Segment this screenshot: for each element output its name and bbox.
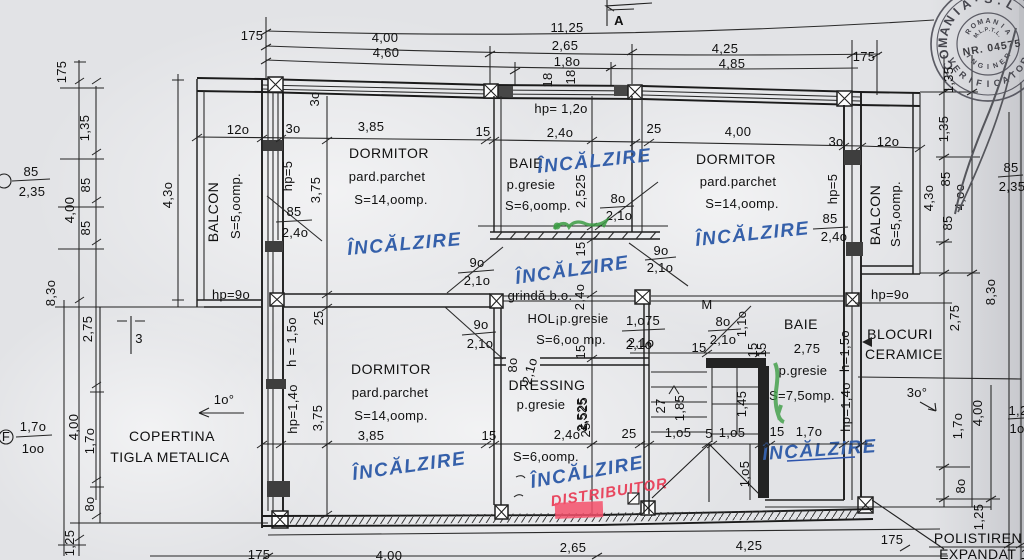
svg-text:DORMITOR: DORMITOR (349, 145, 429, 161)
svg-text:8o: 8o (953, 478, 968, 493)
svg-text:M: M (936, 37, 950, 48)
svg-text:pard.parchet: pard.parchet (349, 169, 426, 184)
svg-text:8o: 8o (610, 191, 625, 206)
svg-text:p.gresie: p.gresie (517, 397, 566, 412)
svg-text:hp=9o: hp=9o (871, 287, 909, 302)
svg-text:4,00: 4,00 (376, 548, 403, 560)
svg-text:TIGLA METALICA: TIGLA METALICA (110, 449, 230, 465)
svg-text:1,85: 1,85 (672, 395, 687, 422)
svg-text:3o: 3o (285, 121, 300, 136)
svg-text:9o: 9o (473, 317, 488, 332)
svg-text:CERAMICE: CERAMICE (865, 346, 943, 362)
svg-text:grindă b.o.: grindă b.o. (508, 288, 573, 303)
svg-text:3,85: 3,85 (358, 428, 385, 443)
svg-text:25: 25 (621, 426, 636, 441)
svg-text:4,85: 4,85 (719, 56, 746, 71)
svg-text:DRESSING: DRESSING (508, 377, 585, 393)
svg-text:p.gresie: p.gresie (779, 363, 828, 378)
svg-text:2,75: 2,75 (794, 341, 821, 356)
svg-text:175: 175 (248, 547, 271, 560)
svg-text:DORMITOR: DORMITOR (351, 361, 431, 377)
svg-text:pard.parchet: pard.parchet (700, 174, 777, 189)
svg-text:1,25: 1,25 (62, 530, 77, 557)
svg-text:3o: 3o (828, 134, 843, 149)
svg-text:1,7o: 1,7o (950, 413, 965, 440)
svg-text:9o: 9o (653, 243, 668, 258)
svg-text:85: 85 (822, 211, 837, 226)
svg-text:25: 25 (311, 310, 326, 325)
svg-text:1o: 1o (1009, 421, 1024, 436)
svg-text:S=6,oomp.: S=6,oomp. (505, 198, 571, 213)
svg-text:S=7,5omp.: S=7,5omp. (769, 388, 835, 403)
svg-text:2,75: 2,75 (947, 305, 962, 332)
svg-text:BALCON: BALCON (205, 182, 221, 243)
svg-text:4,25: 4,25 (736, 538, 763, 553)
svg-text:3,75: 3,75 (310, 405, 325, 432)
svg-text:2,75: 2,75 (80, 316, 95, 343)
svg-text:I: I (987, 79, 990, 89)
svg-text:85: 85 (940, 215, 955, 230)
svg-text:M: M (701, 297, 712, 312)
svg-text:I: I (987, 64, 989, 71)
svg-text:2,1o: 2,1o (606, 208, 633, 223)
svg-text:4,3o: 4,3o (160, 182, 175, 209)
svg-text:11,25: 11,25 (550, 20, 583, 35)
svg-text:3o: 3o (307, 91, 322, 106)
svg-text:POLISTIREN: POLISTIREN (934, 530, 1022, 546)
svg-text:1,o5: 1,o5 (719, 425, 746, 440)
svg-text:2,4o: 2,4o (282, 225, 309, 240)
svg-text:175: 175 (241, 28, 264, 43)
svg-text:175: 175 (853, 49, 876, 64)
svg-text:85: 85 (286, 204, 301, 219)
svg-text:3,85: 3,85 (358, 119, 385, 134)
svg-text:8o: 8o (82, 496, 97, 511)
svg-text:2,35: 2,35 (19, 184, 46, 199)
svg-text:hp=5: hp=5 (825, 174, 840, 204)
svg-text:h = 1,5o: h = 1,5o (284, 317, 299, 367)
svg-text:DORMITOR: DORMITOR (696, 151, 776, 167)
svg-text:1,1o: 1,1o (734, 311, 749, 338)
svg-text:15: 15 (769, 424, 784, 439)
svg-text:A: A (614, 13, 624, 28)
svg-text:2,1o: 2,1o (464, 273, 491, 288)
svg-text:12o: 12o (227, 122, 250, 137)
svg-text:4,00: 4,00 (970, 400, 985, 427)
svg-text:HOL¡p.gresie: HOL¡p.gresie (528, 311, 609, 326)
svg-text:8,3o: 8,3o (43, 280, 58, 307)
svg-text:2,525: 2,525 (573, 174, 588, 208)
svg-text:15: 15 (475, 124, 490, 139)
svg-text:2,4o: 2,4o (547, 125, 574, 140)
svg-text:4,25: 4,25 (712, 41, 739, 56)
svg-text:BAIE: BAIE (784, 316, 818, 332)
svg-text:15: 15 (481, 428, 496, 443)
svg-text:85: 85 (1003, 160, 1018, 175)
svg-text:2,65: 2,65 (552, 38, 579, 53)
svg-text:A: A (985, 18, 990, 25)
svg-text:S=6,oo mp.: S=6,oo mp. (536, 332, 606, 347)
svg-text:4,00: 4,00 (372, 30, 399, 45)
svg-text:8o: 8o (505, 357, 520, 372)
svg-text:4,60: 4,60 (373, 45, 400, 60)
svg-text:18: 18 (563, 69, 578, 84)
svg-text:3o°: 3o° (907, 385, 928, 400)
svg-text:hp=1,4o: hp=1,4o (838, 382, 853, 431)
svg-text:1,7o: 1,7o (796, 424, 823, 439)
svg-text:8,3o: 8,3o (983, 279, 998, 306)
svg-text:S=5,oomp.: S=5,oomp. (228, 173, 243, 239)
svg-text:1,2: 1,2 (1009, 403, 1024, 418)
svg-text:15: 15 (754, 342, 769, 357)
svg-text:2,35: 2,35 (999, 179, 1024, 194)
svg-text:3: 3 (135, 331, 143, 346)
svg-text:175: 175 (881, 532, 904, 547)
svg-text:S: S (984, 0, 992, 6)
svg-text:F: F (2, 429, 10, 444)
svg-text:4,3o: 4,3o (921, 185, 936, 212)
svg-text:COPERTINA: COPERTINA (129, 428, 215, 444)
svg-text:hp=1,4o: hp=1,4o (285, 384, 300, 433)
svg-text:85: 85 (23, 164, 38, 179)
svg-text:pard.parchet: pard.parchet (352, 385, 429, 400)
svg-text:BLOCURI: BLOCURI (867, 326, 933, 342)
svg-text:3,75: 3,75 (308, 177, 323, 204)
svg-text:2,4o: 2,4o (572, 284, 587, 311)
svg-text:hp=5: hp=5 (280, 161, 295, 191)
svg-text:25: 25 (578, 422, 593, 437)
svg-text:15: 15 (573, 241, 588, 256)
svg-text:S=6,oomp.: S=6,oomp. (513, 449, 579, 464)
svg-text:1,45: 1,45 (734, 391, 749, 418)
svg-text:1,35: 1,35 (941, 67, 956, 94)
svg-text:1,7o: 1,7o (82, 428, 97, 455)
svg-text:S=14,oomp.: S=14,oomp. (705, 196, 778, 211)
svg-text:8o: 8o (715, 314, 730, 329)
svg-text:85: 85 (78, 177, 93, 192)
svg-text:85: 85 (938, 171, 953, 186)
svg-text:27: 27 (653, 398, 668, 413)
svg-text:1,o75: 1,o75 (626, 313, 660, 328)
svg-text:h=1,5o: h=1,5o (837, 330, 852, 372)
svg-text:25: 25 (646, 121, 661, 136)
svg-text:2,65: 2,65 (560, 540, 587, 555)
svg-text:2,4o: 2,4o (554, 427, 581, 442)
svg-text:1o°: 1o° (214, 392, 235, 407)
svg-text:2,4o: 2,4o (821, 229, 848, 244)
svg-text:1oo: 1oo (22, 441, 45, 456)
svg-text:p.gresie: p.gresie (507, 177, 556, 192)
svg-text:S=14,oomp.: S=14,oomp. (354, 192, 427, 207)
svg-text:85: 85 (78, 220, 93, 235)
svg-text:5: 5 (705, 426, 713, 441)
svg-text:1,o5: 1,o5 (665, 425, 692, 440)
svg-text:S=5,oomp.: S=5,oomp. (888, 181, 903, 247)
svg-text:4,00: 4,00 (66, 414, 81, 441)
svg-text:EXPANDAT 1: EXPANDAT 1 (939, 546, 1024, 560)
svg-text:hp= 1,2o: hp= 1,2o (534, 101, 587, 116)
svg-text:hp=9o: hp=9o (212, 287, 250, 302)
svg-text:1,35: 1,35 (936, 116, 951, 143)
svg-text:4,00: 4,00 (725, 124, 752, 139)
svg-text:2,1o: 2,1o (626, 337, 653, 352)
svg-text:175: 175 (54, 61, 69, 84)
svg-text:1,35: 1,35 (77, 115, 92, 142)
svg-text:BALCON: BALCON (867, 185, 883, 246)
svg-text:1,7o: 1,7o (20, 419, 47, 434)
svg-text:S=14,oomp.: S=14,oomp. (354, 408, 427, 423)
svg-text:1,25: 1,25 (971, 504, 986, 531)
svg-text:4,00: 4,00 (62, 197, 77, 224)
svg-text:1,8o: 1,8o (554, 54, 581, 69)
